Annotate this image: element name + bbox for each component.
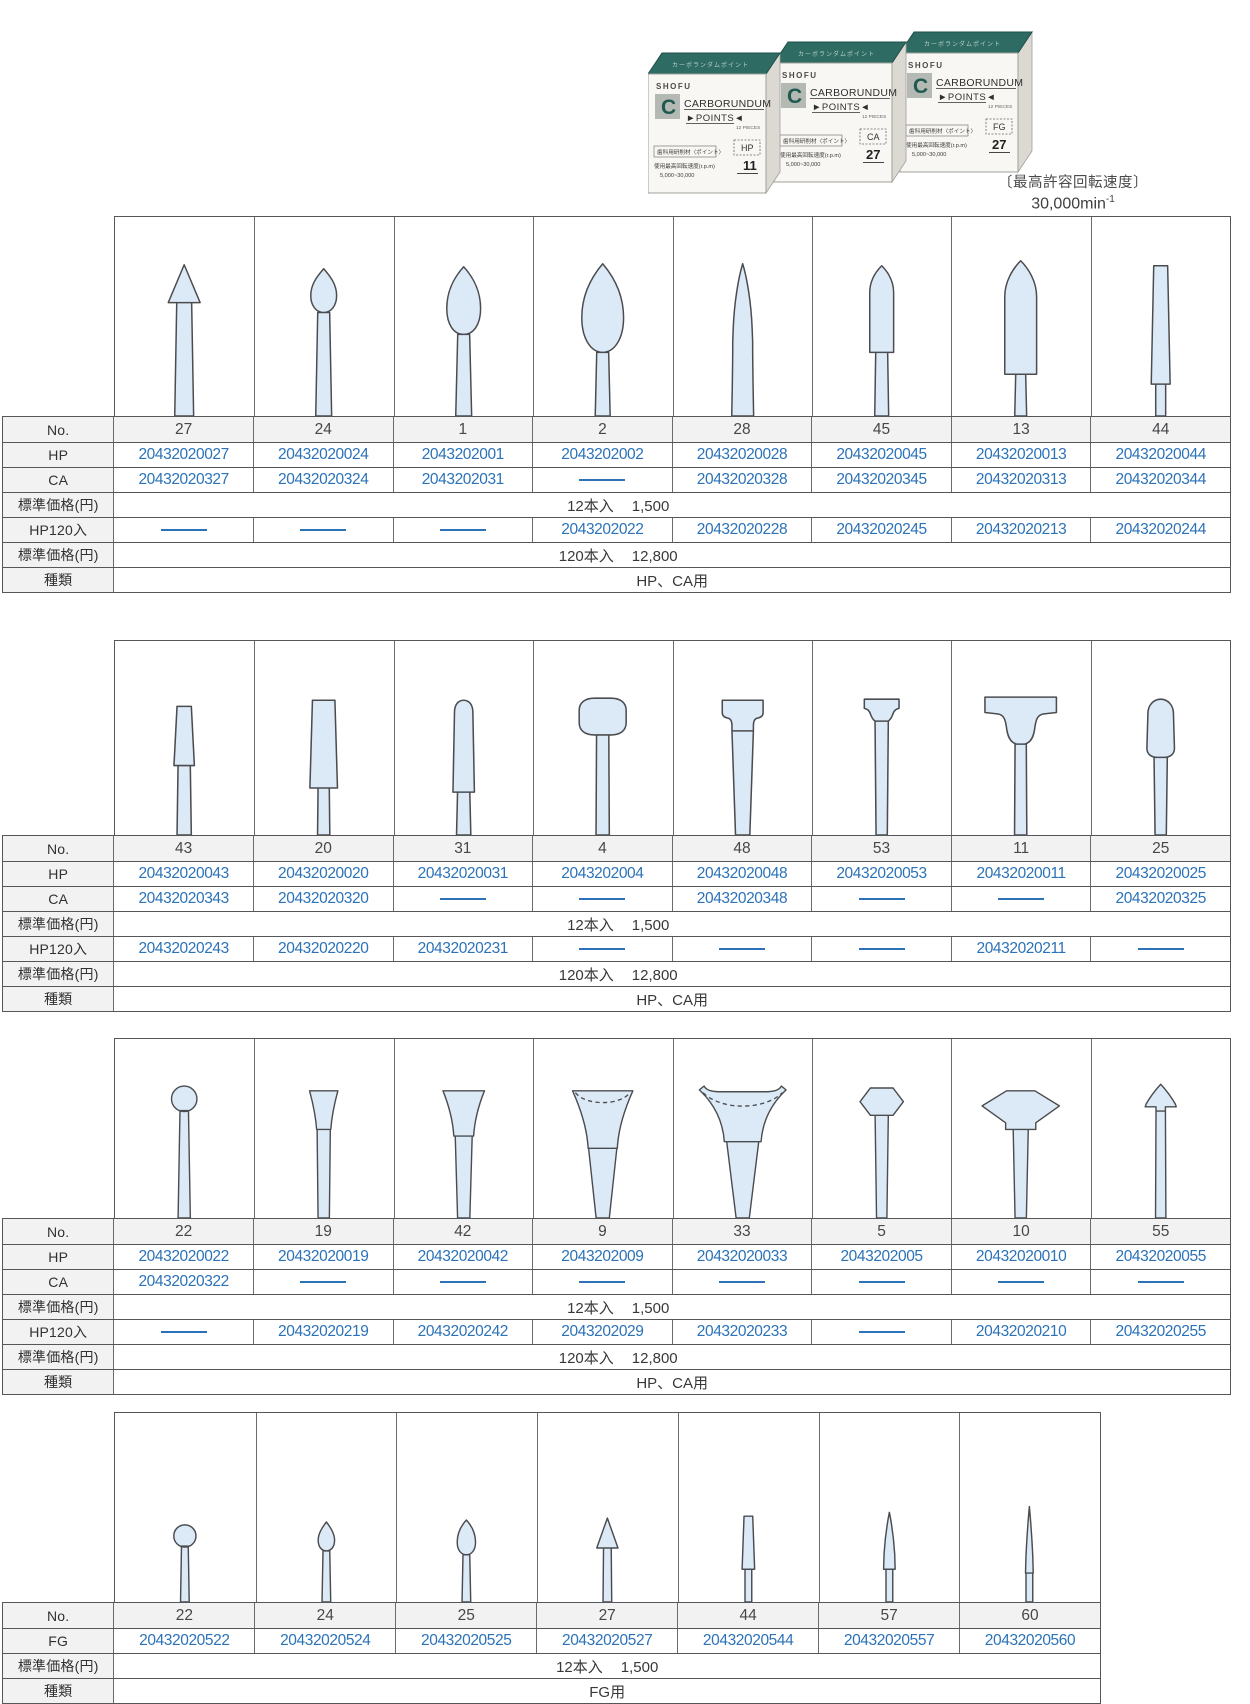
price-text: 12本入1,500 bbox=[556, 1656, 658, 1677]
row-kind: 種類HP、CA用 bbox=[3, 986, 1230, 1011]
point-illustration-needle-fg bbox=[960, 1413, 1100, 1602]
kind-value: HP、CA用 bbox=[636, 570, 708, 591]
cell-hp120-33: 20432020233 bbox=[672, 1320, 812, 1344]
row-label-kind: 種類 bbox=[3, 1370, 113, 1394]
shape-cell-28 bbox=[673, 217, 812, 416]
shape-cell-60 bbox=[959, 1413, 1100, 1602]
row-label-kind: 種類 bbox=[3, 1679, 113, 1703]
point-illustration-taper-flat-fg bbox=[679, 1413, 819, 1602]
order-code: 20432020219 bbox=[278, 1323, 368, 1341]
col-no-33: 33 bbox=[672, 1219, 812, 1244]
cell-fg-24: 20432020524 bbox=[254, 1629, 395, 1653]
jp-speed-range: 5,000~30,000 bbox=[786, 162, 820, 168]
cell-hp-55: 20432020055 bbox=[1090, 1245, 1230, 1269]
cell-hp-53: 20432020053 bbox=[811, 862, 951, 886]
order-code: 20432020048 bbox=[697, 865, 787, 883]
cell-ca-9 bbox=[532, 1270, 672, 1294]
price-12-pack: 12本入1,500 bbox=[113, 1654, 1100, 1678]
row-no: No.432031448531125 bbox=[3, 836, 1230, 861]
shape-cell-5 bbox=[812, 1039, 951, 1218]
row-label-no: No. bbox=[3, 1603, 113, 1628]
box-top-text: カーボランダムポイント bbox=[924, 40, 1001, 48]
col-no-19: 19 bbox=[253, 1219, 393, 1244]
row-price12: 標準価格(円)12本入1,500 bbox=[3, 1294, 1230, 1319]
not-available-dash bbox=[579, 479, 625, 481]
cell-ca-1: 2043202031 bbox=[393, 468, 533, 492]
row-price120: 標準価格(円)120本入12,800 bbox=[3, 1344, 1230, 1369]
order-code: 20432020320 bbox=[278, 890, 368, 908]
point-illustration-ball bbox=[115, 1039, 254, 1218]
cell-ca-27: 20432020327 bbox=[113, 468, 253, 492]
point-illustration-ball-fg bbox=[115, 1413, 256, 1602]
pack-quantity: 120本入 bbox=[559, 967, 614, 984]
point-illustration-flame-fg bbox=[257, 1413, 397, 1602]
col-no-48: 48 bbox=[672, 836, 812, 861]
cell-ca-42 bbox=[393, 1270, 533, 1294]
variant-number: 11 bbox=[743, 158, 757, 173]
shape-row bbox=[114, 1038, 1231, 1218]
cell-hp120-4 bbox=[532, 937, 672, 961]
point-illustration-nail-head bbox=[534, 641, 672, 835]
order-code: 20432020022 bbox=[138, 1248, 228, 1266]
row-hp: HP20432020022204320200192043202004220432… bbox=[3, 1244, 1230, 1269]
order-code: 20432020344 bbox=[1115, 471, 1205, 489]
not-available-dash bbox=[719, 1281, 765, 1283]
cell-fg-57: 20432020557 bbox=[818, 1629, 959, 1653]
product-boxes-photo: カーボランダムポイント SHOFU C CARBORUNDUM ►POINTS◄… bbox=[648, 24, 1040, 196]
row-label-hp120: HP120入 bbox=[3, 518, 113, 542]
not-available-dash bbox=[300, 529, 346, 531]
order-code: 20432020233 bbox=[697, 1323, 787, 1341]
shape-cell-22 bbox=[115, 1039, 254, 1218]
order-code: 2043202031 bbox=[422, 471, 504, 489]
price-value: 1,500 bbox=[632, 1300, 670, 1317]
c-logo-icon: C bbox=[661, 96, 676, 119]
shape-cell-10 bbox=[951, 1039, 1090, 1218]
cell-hp-20: 20432020020 bbox=[253, 862, 393, 886]
order-code: 20432020242 bbox=[418, 1323, 508, 1341]
row-label-no: No. bbox=[3, 417, 113, 442]
row-label-price12: 標準価格(円) bbox=[3, 493, 113, 517]
jp-speed-label: 使用最高回転速度(r.p.m) bbox=[654, 162, 715, 170]
cell-hp120-53 bbox=[811, 937, 951, 961]
cell-hp-33: 20432020033 bbox=[672, 1245, 812, 1269]
col-no-9: 9 bbox=[532, 1219, 672, 1244]
cell-hp-45: 20432020045 bbox=[811, 443, 951, 467]
order-code: 20432020557 bbox=[844, 1632, 934, 1650]
product-name: CARBORUNDUM bbox=[936, 77, 1023, 89]
point-illustration-inv-cone-med bbox=[395, 1039, 533, 1218]
order-code: 20432020522 bbox=[139, 1632, 229, 1650]
cell-hp120-42: 20432020242 bbox=[393, 1320, 533, 1344]
order-code: 20432020255 bbox=[1115, 1323, 1205, 1341]
cell-hp-1: 2043202001 bbox=[393, 443, 533, 467]
cell-hp120-25 bbox=[1090, 937, 1230, 961]
cell-ca-5 bbox=[811, 1270, 951, 1294]
pack-quantity: 12本入 bbox=[556, 1659, 603, 1676]
cell-hp-24: 20432020024 bbox=[253, 443, 393, 467]
cell-hp-4: 2043202004 bbox=[532, 862, 672, 886]
pack-quantity: 12本入 bbox=[567, 917, 614, 934]
cell-ca-4 bbox=[532, 887, 672, 911]
product-name: CARBORUNDUM bbox=[684, 98, 771, 110]
point-illustration-t-flange-med bbox=[674, 641, 812, 835]
cell-hp-27: 20432020027 bbox=[113, 443, 253, 467]
point-illustration-trunc-cone-small bbox=[115, 641, 254, 835]
product-table-1: No.27241228451344HP204320200272043202002… bbox=[2, 216, 1231, 593]
row-kind: 種類HP、CA用 bbox=[3, 1369, 1230, 1394]
point-illustration-cup bbox=[534, 1039, 672, 1218]
point-illustration-trunc-cone-large bbox=[255, 641, 393, 835]
cell-hp120-28: 20432020228 bbox=[672, 518, 812, 542]
shape-cell-53 bbox=[812, 641, 951, 835]
point-illustration-egg bbox=[395, 217, 533, 416]
price-value: 1,500 bbox=[621, 1659, 659, 1676]
kind-cell: HP、CA用 bbox=[113, 987, 1230, 1011]
col-no-42: 42 bbox=[393, 1219, 533, 1244]
col-no-57: 57 bbox=[818, 1603, 959, 1628]
shape-cell-20 bbox=[254, 641, 393, 835]
shape-cell-55 bbox=[1091, 1039, 1230, 1218]
order-code: 20432020527 bbox=[562, 1632, 652, 1650]
cell-hp-31: 20432020031 bbox=[393, 862, 533, 886]
table-rows: No.27241228451344HP204320200272043202002… bbox=[2, 416, 1231, 593]
shape-row bbox=[114, 640, 1231, 835]
pieces-label: 12 PIECES bbox=[862, 114, 886, 120]
row-price120: 標準価格(円)120本入12,800 bbox=[3, 542, 1230, 567]
jp-speed-range: 5,000~30,000 bbox=[912, 152, 946, 158]
cell-hp120-22 bbox=[113, 1320, 253, 1344]
col-no-60: 60 bbox=[959, 1603, 1100, 1628]
not-available-dash bbox=[440, 898, 486, 900]
row-price12: 標準価格(円)12本入1,500 bbox=[3, 1653, 1100, 1678]
cell-ca-13: 20432020313 bbox=[951, 468, 1091, 492]
cell-ca-10 bbox=[951, 1270, 1091, 1294]
kind-value: HP、CA用 bbox=[636, 1372, 708, 1393]
row-label-hp120: HP120入 bbox=[3, 1320, 113, 1344]
order-code: 20432020027 bbox=[138, 446, 228, 464]
order-code: 20432020220 bbox=[278, 940, 368, 958]
product-table-2: No.432031448531125HP20432020043204320200… bbox=[2, 640, 1231, 1012]
col-no-5: 5 bbox=[811, 1219, 951, 1244]
order-code: 20432020348 bbox=[697, 890, 787, 908]
row-label-price120: 標準価格(円) bbox=[3, 543, 113, 567]
price-text: 120本入12,800 bbox=[559, 1347, 678, 1368]
shape-row bbox=[114, 1412, 1101, 1602]
shape-cell-48 bbox=[673, 641, 812, 835]
box-top-text: カーボランダムポイント bbox=[672, 61, 749, 69]
not-available-dash bbox=[579, 1281, 625, 1283]
shape-cell-27 bbox=[537, 1413, 678, 1602]
cell-hp120-9: 2043202029 bbox=[532, 1320, 672, 1344]
cell-hp120-48 bbox=[672, 937, 812, 961]
row-label-hp120: HP120入 bbox=[3, 937, 113, 961]
row-ca: CA20432020322 bbox=[3, 1269, 1230, 1294]
col-no-44: 44 bbox=[677, 1603, 818, 1628]
row-label-price12: 標準価格(円) bbox=[3, 1295, 113, 1319]
col-no-10: 10 bbox=[951, 1219, 1091, 1244]
col-no-31: 31 bbox=[393, 836, 533, 861]
brand-logo-text: SHOFU bbox=[908, 61, 944, 70]
price-text: 120本入12,800 bbox=[559, 964, 678, 985]
point-illustration-dome-cylinder bbox=[395, 641, 533, 835]
col-no-28: 28 bbox=[672, 417, 812, 442]
max-speed-caption: 〔最高許容回転速度〕 bbox=[978, 174, 1168, 193]
cell-hp120-1 bbox=[393, 518, 533, 542]
row-price120: 標準価格(円)120本入12,800 bbox=[3, 961, 1230, 986]
not-available-dash bbox=[859, 1281, 905, 1283]
shape-cell-43 bbox=[115, 641, 254, 835]
shape-cell-24 bbox=[254, 217, 393, 416]
point-illustration-t-flange-large bbox=[952, 641, 1090, 835]
row-label-kind: 種類 bbox=[3, 568, 113, 592]
box-top-text: カーボランダムポイント bbox=[798, 50, 875, 58]
variant-type: HP bbox=[741, 143, 754, 153]
cell-hp-5: 2043202005 bbox=[811, 1245, 951, 1269]
order-code: 20432020228 bbox=[697, 521, 787, 539]
cell-ca-45: 20432020345 bbox=[811, 468, 951, 492]
row-label-price120: 標準価格(円) bbox=[3, 1345, 113, 1369]
cell-ca-31 bbox=[393, 887, 533, 911]
cell-fg-27: 20432020527 bbox=[536, 1629, 677, 1653]
product-table-4: No.22242527445760FG204320205222043202052… bbox=[2, 1412, 1101, 1704]
row-label-kind: 種類 bbox=[3, 987, 113, 1011]
kind-value: FG用 bbox=[589, 1681, 625, 1702]
not-available-dash bbox=[161, 529, 207, 531]
cell-ca-2 bbox=[532, 468, 672, 492]
order-code: 20432020313 bbox=[976, 471, 1066, 489]
cell-hp-22: 20432020022 bbox=[113, 1245, 253, 1269]
row-label-hp: HP bbox=[3, 862, 113, 886]
order-code: 20432020031 bbox=[418, 865, 508, 883]
row-label-ca: CA bbox=[3, 887, 113, 911]
cell-ca-11 bbox=[951, 887, 1091, 911]
row-label-ca: CA bbox=[3, 1270, 113, 1294]
kind-cell: HP、CA用 bbox=[113, 568, 1230, 592]
cell-hp-25: 20432020025 bbox=[1090, 862, 1230, 886]
price-value: 12,800 bbox=[632, 967, 678, 984]
row-hp: HP20432020043204320200202043202003120432… bbox=[3, 861, 1230, 886]
point-illustration-t-flange-small bbox=[813, 641, 951, 835]
row-label-price120: 標準価格(円) bbox=[3, 962, 113, 986]
point-illustration-torpedo bbox=[952, 217, 1090, 416]
cell-ca-20: 20432020320 bbox=[253, 887, 393, 911]
cell-hp120-2: 2043202022 bbox=[532, 518, 672, 542]
not-available-dash bbox=[579, 948, 625, 950]
row-label-no: No. bbox=[3, 836, 113, 861]
cell-hp-28: 20432020028 bbox=[672, 443, 812, 467]
not-available-dash bbox=[579, 898, 625, 900]
cell-ca-24: 20432020324 bbox=[253, 468, 393, 492]
cell-hp-13: 20432020013 bbox=[951, 443, 1091, 467]
shape-cell-9 bbox=[533, 1039, 672, 1218]
cell-hp120-27 bbox=[113, 518, 253, 542]
not-available-dash bbox=[1138, 948, 1184, 950]
product-boxes-illustration: カーボランダムポイント SHOFU C CARBORUNDUM ►POINTS◄… bbox=[648, 24, 1040, 196]
price-12-pack: 12本入1,500 bbox=[113, 1295, 1230, 1319]
shape-cell-19 bbox=[254, 1039, 393, 1218]
cell-hp-2: 2043202002 bbox=[532, 443, 672, 467]
col-no-24: 24 bbox=[254, 1603, 395, 1628]
row-hp: HP20432020027204320200242043202001204320… bbox=[3, 442, 1230, 467]
product-table-3: No.22194293351055HP204320200222043202001… bbox=[2, 1038, 1231, 1395]
order-code: 20432020327 bbox=[138, 471, 228, 489]
not-available-dash bbox=[440, 1281, 486, 1283]
cell-ca-25: 20432020325 bbox=[1090, 887, 1230, 911]
jp-material-label: 歯科用研削材〈ポイント〉 bbox=[657, 148, 724, 156]
kind-cell: HP、CA用 bbox=[113, 1370, 1230, 1394]
shape-cell-33 bbox=[673, 1039, 812, 1218]
col-no-27: 27 bbox=[536, 1603, 677, 1628]
col-no-43: 43 bbox=[113, 836, 253, 861]
cell-ca-28: 20432020328 bbox=[672, 468, 812, 492]
cell-hp-10: 20432020010 bbox=[951, 1245, 1091, 1269]
order-code: 20432020045 bbox=[836, 446, 926, 464]
cell-ca-22: 20432020322 bbox=[113, 1270, 253, 1294]
order-code: 20432020033 bbox=[697, 1248, 787, 1266]
shape-cell-27 bbox=[115, 217, 254, 416]
jp-speed-label: 使用最高回転速度(r.p.m) bbox=[906, 141, 967, 149]
cell-hp120-45: 20432020245 bbox=[811, 518, 951, 542]
cell-hp-43: 20432020043 bbox=[113, 862, 253, 886]
order-code: 20432020324 bbox=[278, 471, 368, 489]
pieces-label: 12 PIECES bbox=[736, 125, 760, 131]
not-available-dash bbox=[719, 948, 765, 950]
order-code: 20432020243 bbox=[138, 940, 228, 958]
price-text: 12本入1,500 bbox=[567, 495, 669, 516]
cell-ca-48: 20432020348 bbox=[672, 887, 812, 911]
col-no-2: 2 bbox=[532, 417, 672, 442]
shape-cell-22 bbox=[115, 1413, 256, 1602]
cell-hp120-13: 20432020213 bbox=[951, 518, 1091, 542]
point-illustration-bud bbox=[1092, 641, 1230, 835]
order-code: 2043202001 bbox=[422, 446, 504, 464]
cell-fg-44: 20432020544 bbox=[677, 1629, 818, 1653]
col-no-22: 22 bbox=[113, 1603, 254, 1628]
row-label-price12: 標準価格(円) bbox=[3, 912, 113, 936]
shape-cell-57 bbox=[819, 1413, 960, 1602]
price-text: 12本入1,500 bbox=[567, 1297, 669, 1318]
row-label-no: No. bbox=[3, 1219, 113, 1244]
order-code: 20432020042 bbox=[418, 1248, 508, 1266]
col-no-55: 55 bbox=[1090, 1219, 1230, 1244]
order-code: 20432020524 bbox=[280, 1632, 370, 1650]
pack-quantity: 12本入 bbox=[567, 1300, 614, 1317]
c-logo-icon: C bbox=[787, 85, 802, 108]
order-code: 20432020544 bbox=[703, 1632, 793, 1650]
row-ca: CA20432020327204320203242043202031204320… bbox=[3, 467, 1230, 492]
product-subname: ►POINTS◄ bbox=[812, 102, 870, 113]
point-illustration-cone-fg bbox=[538, 1413, 678, 1602]
col-no-25: 25 bbox=[1090, 836, 1230, 861]
point-illustration-cup-wide bbox=[674, 1039, 812, 1218]
product-subname: ►POINTS◄ bbox=[938, 92, 996, 103]
row-label-ca: CA bbox=[3, 468, 113, 492]
cell-fg-60: 20432020560 bbox=[959, 1629, 1100, 1653]
order-code: 20432020020 bbox=[278, 865, 368, 883]
cell-hp120-31: 20432020231 bbox=[393, 937, 533, 961]
price-12-pack: 12本入1,500 bbox=[113, 493, 1230, 517]
row-kind: 種類HP、CA用 bbox=[3, 567, 1230, 592]
product-box-ca: カーボランダムポイント SHOFU C CARBORUNDUM ►POINTS◄… bbox=[774, 42, 906, 182]
col-no-20: 20 bbox=[253, 836, 393, 861]
cell-hp-48: 20432020048 bbox=[672, 862, 812, 886]
row-hp120: HP120入2043202021920432020242204320202920… bbox=[3, 1319, 1230, 1344]
shape-cell-2 bbox=[533, 217, 672, 416]
brand-logo-text: SHOFU bbox=[656, 82, 692, 91]
order-code: 20432020525 bbox=[421, 1632, 511, 1650]
pieces-label: 12 PIECES bbox=[988, 104, 1012, 110]
point-illustration-bullet bbox=[813, 217, 951, 416]
row-label-hp: HP bbox=[3, 443, 113, 467]
order-code: 20432020213 bbox=[976, 521, 1066, 539]
cell-hp-9: 2043202009 bbox=[532, 1245, 672, 1269]
order-code: 20432020210 bbox=[976, 1323, 1066, 1341]
order-code: 20432020043 bbox=[138, 865, 228, 883]
not-available-dash bbox=[440, 529, 486, 531]
max-speed-value: 30,000min-1 bbox=[978, 193, 1168, 215]
row-price12: 標準価格(円)12本入1,500 bbox=[3, 492, 1230, 517]
point-illustration-flame-large bbox=[534, 217, 672, 416]
not-available-dash bbox=[859, 1331, 905, 1333]
row-hp120: HP120入2043202022204320202282043202024520… bbox=[3, 517, 1230, 542]
cell-hp-19: 20432020019 bbox=[253, 1245, 393, 1269]
point-illustration-knife-wheel bbox=[952, 1039, 1090, 1218]
not-available-dash bbox=[300, 1281, 346, 1283]
point-illustration-egg-fg bbox=[397, 1413, 537, 1602]
col-no-44: 44 bbox=[1090, 417, 1230, 442]
col-no-24: 24 bbox=[253, 417, 393, 442]
price-value: 12,800 bbox=[632, 548, 678, 565]
not-available-dash bbox=[859, 948, 905, 950]
row-no: No.27241228451344 bbox=[3, 417, 1230, 442]
pack-quantity: 12本入 bbox=[567, 498, 614, 515]
not-available-dash bbox=[859, 898, 905, 900]
point-illustration-inv-cone-small bbox=[255, 1039, 393, 1218]
cell-hp120-10: 20432020210 bbox=[951, 1320, 1091, 1344]
pack-quantity: 120本入 bbox=[559, 1350, 614, 1367]
jp-material-label: 歯科用研削材〈ポイント〉 bbox=[909, 127, 976, 135]
point-illustration-taper-point bbox=[674, 217, 812, 416]
cell-hp120-44: 20432020244 bbox=[1090, 518, 1230, 542]
order-code: 20432020055 bbox=[1115, 1248, 1205, 1266]
order-code: 20432020322 bbox=[138, 1273, 228, 1291]
order-code: 20432020028 bbox=[697, 446, 787, 464]
cell-hp120-20: 20432020220 bbox=[253, 937, 393, 961]
point-illustration-spear bbox=[1092, 1039, 1230, 1218]
row-price12: 標準価格(円)12本入1,500 bbox=[3, 911, 1230, 936]
price-value: 1,500 bbox=[632, 498, 670, 515]
product-box-fg: カーボランダムポイント SHOFU C CARBORUNDUM ►POINTS◄… bbox=[900, 32, 1032, 172]
price-text: 120本入12,800 bbox=[559, 545, 678, 566]
brand-logo-text: SHOFU bbox=[782, 71, 818, 80]
order-code: 20432020011 bbox=[976, 865, 1065, 883]
shape-cell-44 bbox=[1091, 217, 1230, 416]
shape-cell-11 bbox=[951, 641, 1090, 835]
row-no: No.22194293351055 bbox=[3, 1219, 1230, 1244]
jp-speed-label: 使用最高回転速度(r.p.m) bbox=[780, 151, 841, 159]
shape-cell-44 bbox=[678, 1413, 819, 1602]
order-code: 20432020325 bbox=[1115, 890, 1205, 908]
product-box-hp: カーボランダムポイント SHOFU C CARBORUNDUM ►POINTS◄… bbox=[648, 53, 780, 193]
shape-cell-45 bbox=[812, 217, 951, 416]
order-code: 20432020343 bbox=[138, 890, 228, 908]
max-speed-note: 〔最高許容回転速度〕 30,000min-1 bbox=[978, 174, 1168, 215]
order-code: 20432020345 bbox=[836, 471, 926, 489]
point-illustration-flame-small bbox=[255, 217, 393, 416]
cell-hp120-11: 20432020211 bbox=[951, 937, 1091, 961]
cell-ca-43: 20432020343 bbox=[113, 887, 253, 911]
